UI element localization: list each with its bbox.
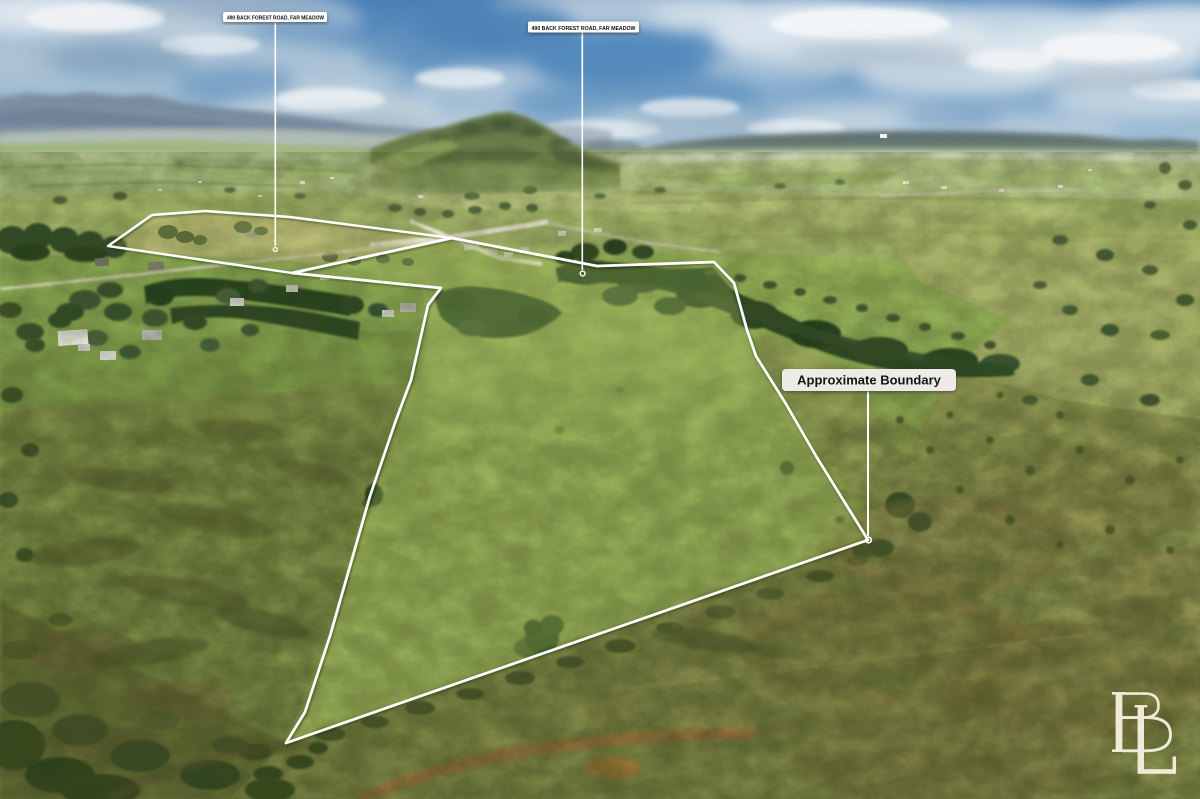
- svg-text:Approximate Boundary: Approximate Boundary: [797, 373, 942, 388]
- svg-text:490 BACK FOREST ROAD, FAR MEAD: 490 BACK FOREST ROAD, FAR MEADOW: [532, 26, 636, 32]
- svg-text:490 BACK FOREST ROAD, FAR MEAD: 490 BACK FOREST ROAD, FAR MEADOW: [227, 16, 325, 22]
